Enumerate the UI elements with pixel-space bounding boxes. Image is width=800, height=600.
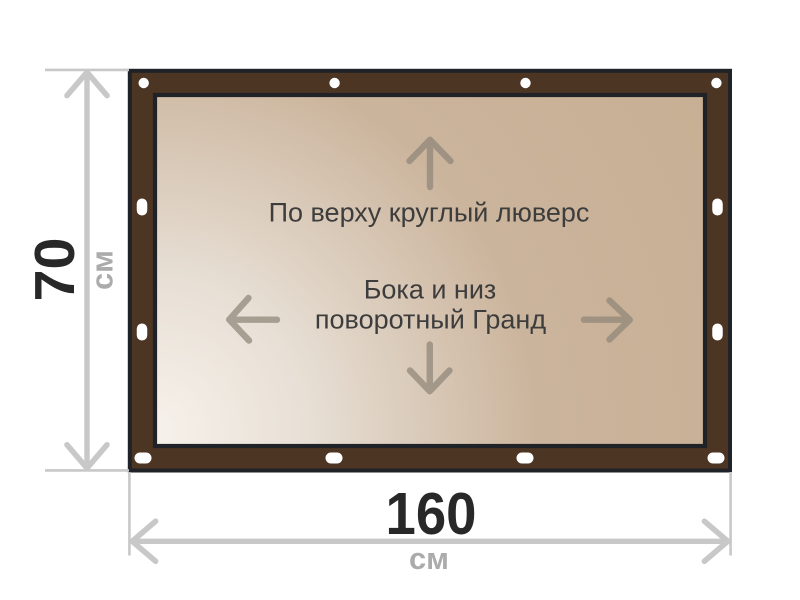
svg-text:см: см (409, 541, 449, 576)
svg-text:см: см (84, 250, 119, 290)
svg-text:70: 70 (23, 238, 87, 302)
svg-text:поворотный Гранд: поворотный Гранд (315, 304, 546, 334)
svg-text:По верху круглый люверс: По верху круглый люверс (269, 197, 590, 227)
svg-text:160: 160 (386, 481, 477, 547)
svg-text:Бока и низ: Бока и низ (364, 275, 497, 305)
